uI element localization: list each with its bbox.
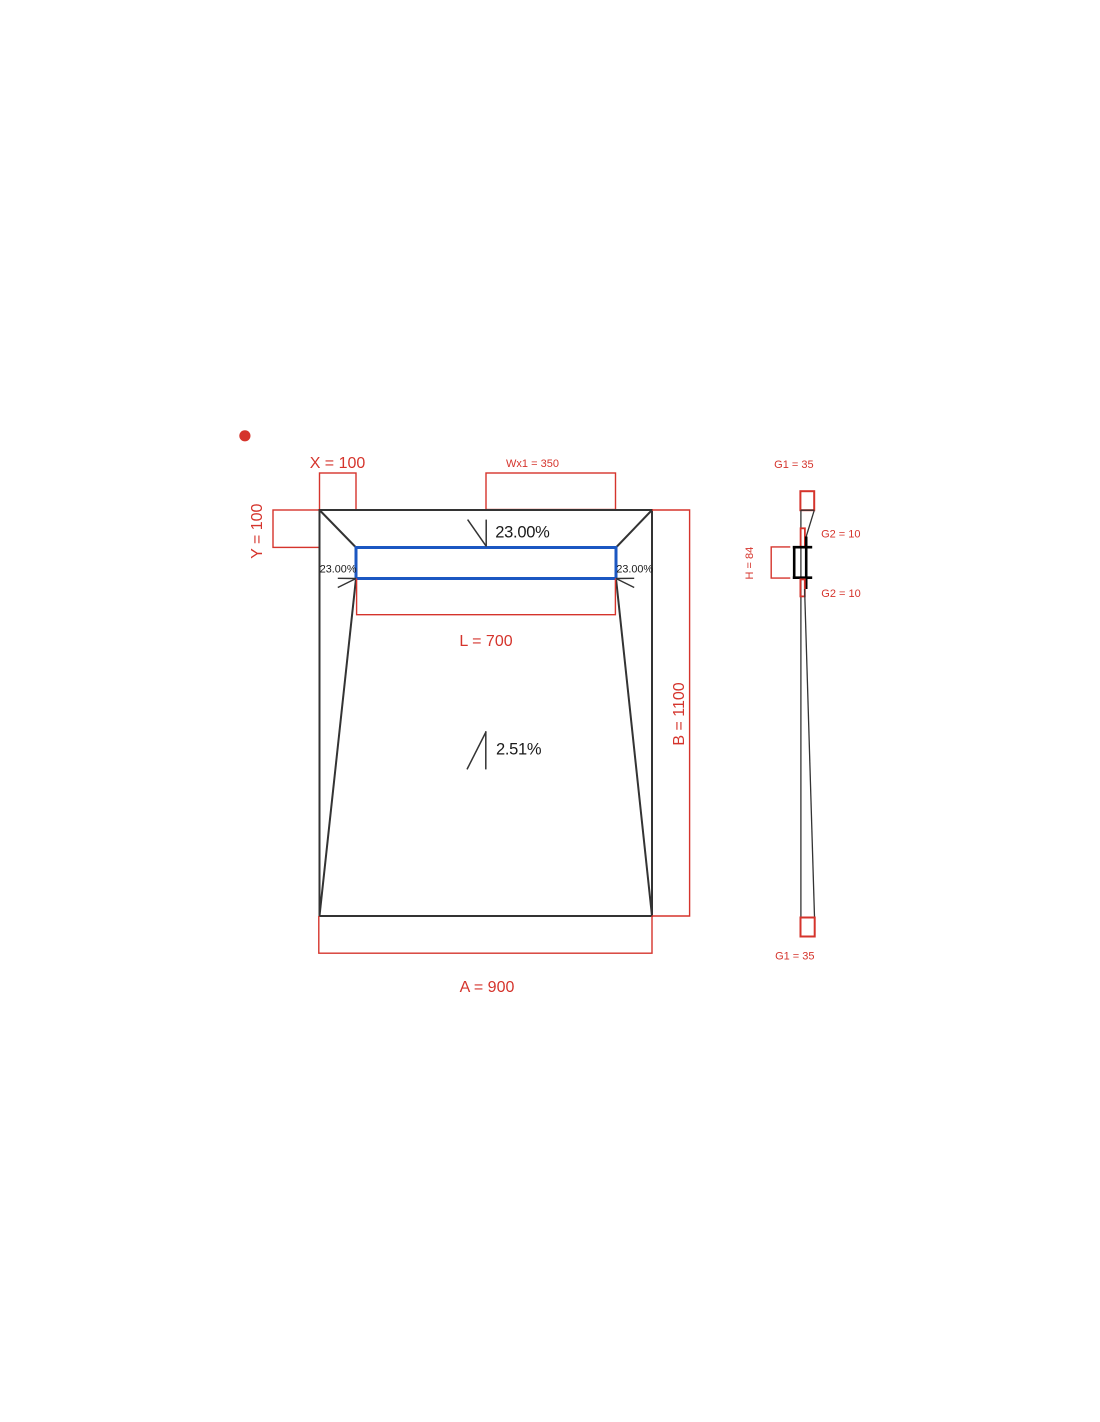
svg-text:X = 100: X = 100 <box>310 455 366 472</box>
svg-text:G1 = 35: G1 = 35 <box>774 459 813 471</box>
svg-text:A = 900: A = 900 <box>460 979 515 996</box>
svg-text:Wx1 = 350: Wx1 = 350 <box>506 458 559 470</box>
svg-text:23.00%: 23.00% <box>495 524 550 542</box>
svg-text:G2 = 10: G2 = 10 <box>821 528 860 540</box>
svg-text:G1 = 35: G1 = 35 <box>775 951 814 963</box>
svg-text:23.00%: 23.00% <box>616 564 653 576</box>
svg-text:Y = 100: Y = 100 <box>249 503 266 558</box>
svg-text:G2 = 10: G2 = 10 <box>821 588 860 600</box>
svg-text:23.00%: 23.00% <box>320 564 357 576</box>
svg-text:B = 1100: B = 1100 <box>671 682 688 745</box>
svg-text:H = 84: H = 84 <box>744 547 756 580</box>
svg-text:2.51%: 2.51% <box>496 741 542 759</box>
svg-text:L = 700: L = 700 <box>459 633 512 650</box>
